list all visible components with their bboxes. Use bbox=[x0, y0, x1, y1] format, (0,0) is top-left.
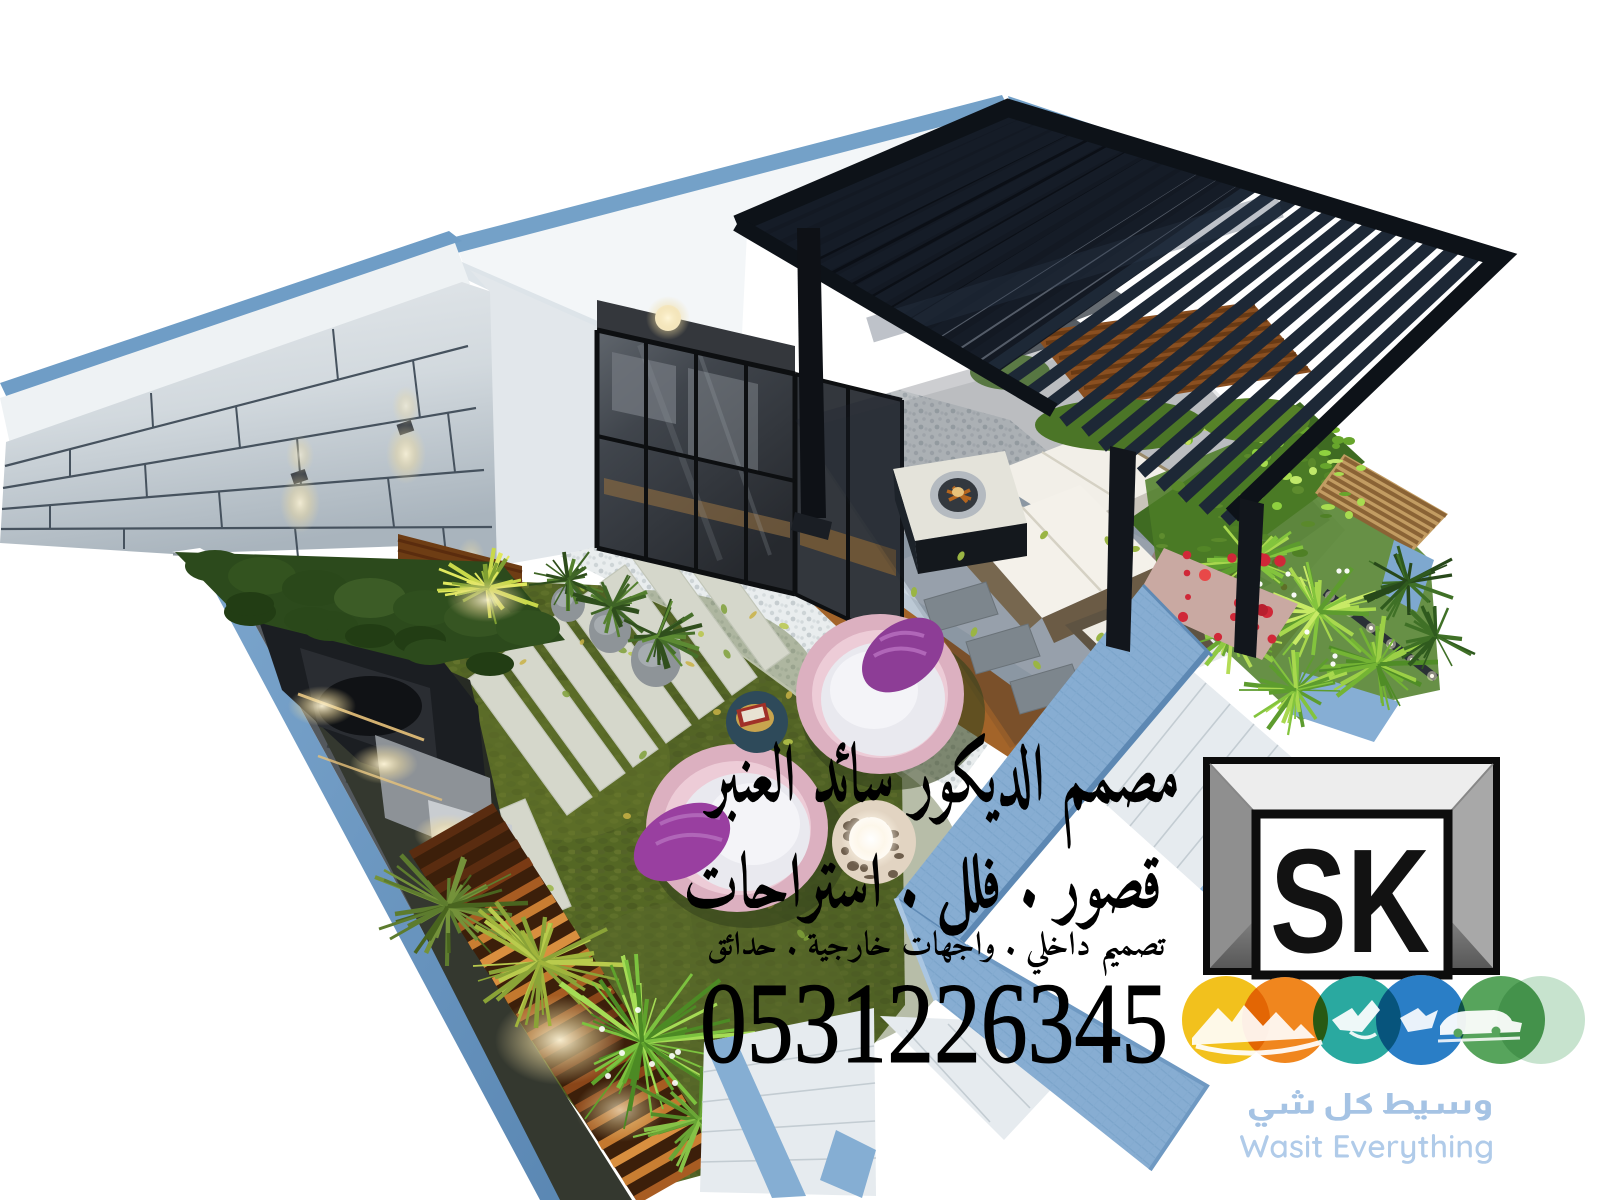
svg-text:SK: SK bbox=[1270, 819, 1430, 984]
svg-text:0531226345: 0531226345 bbox=[700, 960, 1168, 1088]
